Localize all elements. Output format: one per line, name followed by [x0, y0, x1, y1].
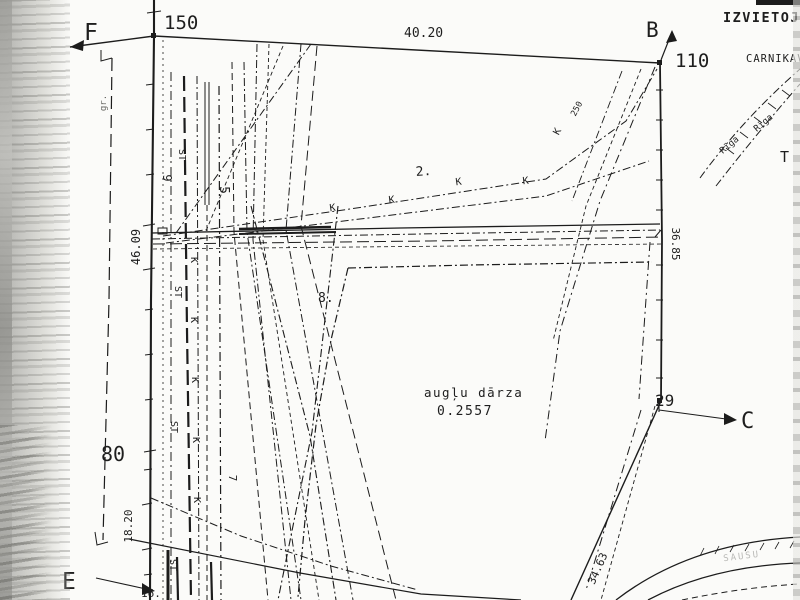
- utility-line: [253, 44, 291, 600]
- utility-line: [263, 44, 319, 600]
- line-label-5: 5: [216, 186, 231, 194]
- inner-line: [601, 406, 655, 600]
- v-line-east: [251, 206, 336, 600]
- arrowhead-b: [666, 30, 677, 43]
- cable-mark-k: K: [388, 195, 395, 207]
- line-label-9: 9: [160, 174, 174, 181]
- boundary-north-line: [70, 36, 660, 63]
- ticks-46-09: [143, 224, 155, 270]
- riga-road-inner: [716, 84, 800, 186]
- measurement-west: 46.09: [129, 229, 143, 265]
- station-29: 29: [655, 391, 674, 410]
- st-mark: ST: [168, 421, 179, 433]
- measurement-west-lower: 18.20: [122, 509, 135, 542]
- measurement-southeast: 34.63: [585, 551, 610, 587]
- margin-bar: [756, 0, 800, 5]
- road-curve-inner: [648, 563, 800, 600]
- corner-point-nw: [151, 33, 156, 38]
- road-curve-outer: [616, 537, 800, 600]
- line-label-7: 7: [226, 475, 239, 482]
- crossing-line: [176, 44, 311, 233]
- corner-label-e: E: [62, 569, 76, 595]
- station-110: 110: [675, 50, 709, 72]
- corner-label-c: C: [741, 409, 754, 434]
- corner-label-b: B: [646, 18, 659, 42]
- arrow-line-c: [659, 410, 726, 419]
- inner-line: [639, 242, 650, 399]
- line-2-cable: [163, 69, 657, 236]
- parcel-8-north: [348, 262, 652, 268]
- bundle-end-hook: [655, 230, 661, 237]
- ditch-label: gr.: [99, 95, 109, 111]
- labels: F B C E 150 110 80 29 40.20 46.09 36.85 …: [62, 10, 800, 600]
- margin-t: T: [780, 148, 789, 166]
- parcel-area: 0.2557: [437, 404, 493, 419]
- riga-label-1: Rīga: [718, 135, 741, 157]
- diagonal-line: [545, 67, 655, 441]
- corner-label-f: F: [84, 20, 98, 46]
- st-mark: ST: [176, 149, 187, 161]
- st-mark: ST: [167, 559, 178, 571]
- utility-line: [286, 44, 353, 600]
- cable-mark-k: K: [188, 317, 199, 323]
- measurement-top: 40.20: [404, 26, 443, 41]
- cable-mark-k: K: [522, 176, 529, 188]
- parcel-boundary: [70, 0, 737, 600]
- ditch-end-north: [101, 50, 112, 61]
- ditch-end-south: [95, 532, 108, 545]
- northeast-diagonals: [163, 67, 657, 441]
- boundary-southeast-line: [571, 401, 661, 600]
- road-name-label: SAUSU: [723, 550, 761, 564]
- utility-line: [301, 46, 396, 600]
- parcel-line-8: 8.: [318, 291, 334, 306]
- boundary-west-line: [150, 0, 154, 600]
- bundle-line-solid: [152, 224, 660, 233]
- diagonal-line: [553, 69, 641, 341]
- station-150: 150: [164, 12, 198, 34]
- horizontal-utility-bundle: [152, 224, 662, 249]
- parcel-8-west: [298, 268, 348, 597]
- arrowhead-f: [70, 40, 84, 51]
- arrow-line-e: [96, 578, 146, 589]
- ditch-dashed-line: [103, 58, 112, 540]
- utility-line: [244, 62, 301, 600]
- utility-line: [197, 76, 199, 600]
- cable-mark-k: K: [329, 203, 337, 215]
- south-crossing-lines: [129, 498, 521, 600]
- cable-mark-k: K: [552, 127, 565, 137]
- east-inner-lines: [586, 242, 655, 600]
- cable-mark-k: K: [188, 257, 199, 263]
- line-label-2: 2.: [415, 164, 432, 180]
- survey-plan-drawing: F B C E 150 110 80 29 40.20 46.09 36.85 …: [0, 0, 800, 600]
- utility-line: [232, 62, 268, 600]
- bundle-line: [153, 237, 662, 244]
- cable-mark-250: 250: [569, 100, 585, 118]
- cable-mark-k: K: [191, 497, 202, 503]
- dark-mark: [211, 562, 212, 600]
- margin-subtitle: CARNIKAV: [746, 53, 800, 65]
- boundary-east-line: [660, 63, 662, 401]
- cable-mark-k: K: [190, 437, 201, 443]
- southeast-road: [616, 537, 800, 600]
- arrowhead-c: [724, 413, 737, 425]
- ditch-line: [95, 50, 112, 545]
- v-line-west: [278, 206, 338, 600]
- scanned-survey-plan: F B C E 150 110 80 29 40.20 46.09 36.85 …: [0, 0, 800, 600]
- margin-title: IZVIETOJ: [723, 10, 800, 26]
- measurement-east: 36.85: [669, 227, 682, 260]
- line-label-16: 16.: [141, 587, 161, 600]
- road-curve-edge: [682, 584, 800, 600]
- crossing-line-solid: [129, 539, 521, 600]
- riga-label-2: Rīga: [752, 113, 775, 135]
- parcel-8-boundary: [298, 262, 652, 597]
- double-solid-line: [205, 82, 209, 205]
- corner-point-b: [657, 60, 662, 65]
- cable-mark-k: K: [189, 377, 200, 383]
- station-80: 80: [101, 442, 125, 466]
- utility-line-5: [219, 86, 221, 600]
- st-mark: ST: [172, 286, 183, 298]
- cable-mark-k: K: [455, 177, 463, 189]
- parcel-name: augļu dārza: [424, 385, 523, 401]
